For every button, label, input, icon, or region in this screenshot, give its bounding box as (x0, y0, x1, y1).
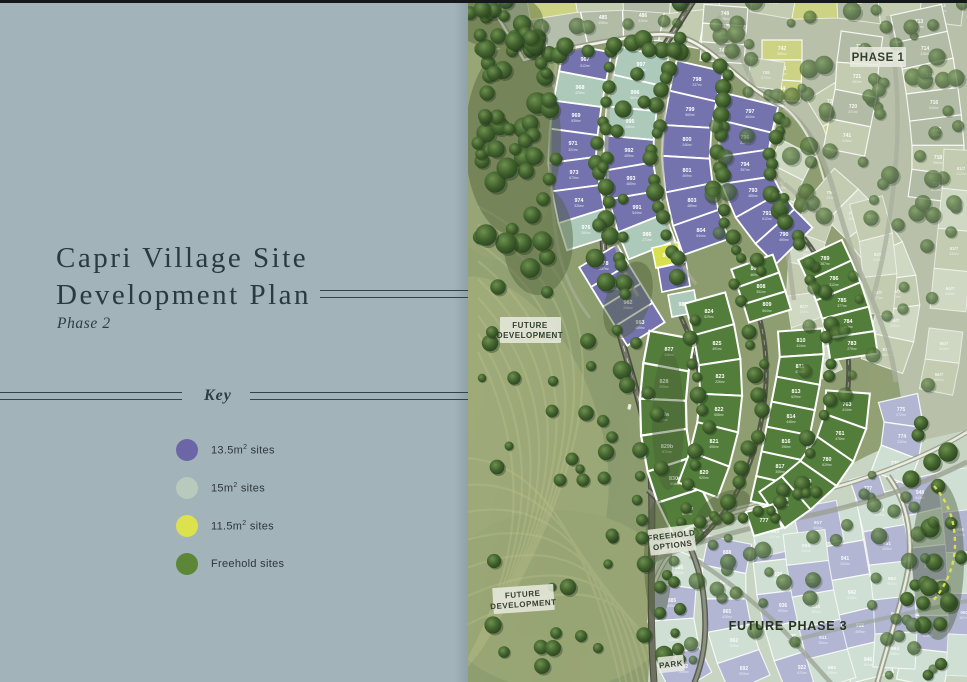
svg-text:265m²: 265m² (882, 547, 892, 551)
svg-text:629m²: 629m² (822, 463, 832, 467)
svg-text:745: 745 (762, 70, 770, 75)
svg-text:377m²: 377m² (837, 304, 847, 308)
svg-text:971: 971 (569, 141, 578, 147)
svg-text:490m²: 490m² (779, 238, 789, 242)
svg-text:658m²: 658m² (714, 413, 724, 417)
svg-text:393m²: 393m² (739, 672, 749, 676)
svg-text:670m²: 670m² (569, 176, 579, 180)
svg-text:61/7: 61/7 (957, 166, 966, 171)
svg-text:459m²: 459m² (624, 154, 634, 158)
svg-text:529m²: 529m² (704, 315, 714, 319)
svg-text:316m²: 316m² (842, 139, 852, 143)
svg-text:351m²: 351m² (863, 663, 873, 667)
svg-text:485m²: 485m² (626, 182, 636, 186)
svg-text:312m²: 312m² (956, 172, 966, 176)
svg-text:670m²: 670m² (761, 76, 771, 80)
svg-text:335m²: 335m² (827, 671, 837, 675)
svg-text:287m²: 287m² (820, 262, 830, 266)
svg-text:279m²: 279m² (847, 347, 857, 351)
svg-text:272m²: 272m² (896, 413, 906, 417)
svg-text:65/7: 65/7 (940, 341, 949, 346)
svg-text:498m²: 498m² (598, 21, 608, 25)
svg-text:503m²: 503m² (887, 582, 897, 586)
svg-text:FUTURE: FUTURE (512, 321, 548, 330)
svg-text:242m²: 242m² (840, 562, 850, 566)
svg-text:425m²: 425m² (575, 91, 585, 95)
svg-text:325m²: 325m² (729, 644, 739, 648)
svg-text:612m²: 612m² (762, 217, 772, 221)
svg-text:544m²: 544m² (696, 234, 706, 238)
svg-text:FUTURE PHASE 3: FUTURE PHASE 3 (729, 619, 848, 633)
svg-text:234m²: 234m² (674, 571, 684, 575)
svg-text:420m²: 420m² (799, 310, 809, 314)
svg-text:486m²: 486m² (748, 194, 758, 198)
svg-text:326m²: 326m² (574, 204, 584, 208)
svg-text:598m²: 598m² (890, 652, 900, 656)
svg-text:491m²: 491m² (712, 347, 722, 351)
svg-text:254m²: 254m² (818, 641, 828, 645)
svg-text:476m²: 476m² (835, 437, 845, 441)
svg-text:409m²: 409m² (855, 630, 865, 634)
svg-text:321m²: 321m² (568, 148, 578, 152)
svg-text:645m²: 645m² (929, 106, 939, 110)
svg-text:493m²: 493m² (852, 80, 862, 84)
svg-text:237m²: 237m² (770, 535, 780, 539)
svg-text:PHASE 1: PHASE 1 (852, 52, 905, 64)
svg-text:448m²: 448m² (786, 420, 796, 424)
svg-text:593m²: 593m² (778, 609, 788, 613)
svg-text:590m²: 590m² (933, 161, 943, 165)
svg-text:312m²: 312m² (829, 283, 839, 287)
svg-text:629m²: 629m² (791, 395, 801, 399)
svg-text:289m²: 289m² (811, 610, 821, 614)
svg-text:777: 777 (760, 518, 769, 524)
svg-text:544m²: 544m² (632, 211, 642, 215)
svg-text:496m²: 496m² (709, 445, 719, 449)
svg-text:645m²: 645m² (945, 292, 955, 296)
svg-text:564m²: 564m² (762, 309, 772, 313)
svg-text:351m²: 351m² (756, 290, 766, 294)
svg-text:539m²: 539m² (571, 119, 581, 123)
svg-text:459m²: 459m² (682, 174, 692, 178)
svg-text:460m²: 460m² (745, 115, 755, 119)
svg-text:809: 809 (763, 302, 772, 308)
svg-text:414m²: 414m² (842, 408, 852, 412)
svg-text:371m²: 371m² (848, 110, 858, 114)
svg-text:242m²: 242m² (897, 440, 907, 444)
svg-text:362m²: 362m² (959, 616, 967, 620)
svg-text:219m²: 219m² (801, 549, 811, 553)
svg-text:539m²: 539m² (669, 638, 679, 642)
svg-text:66/7: 66/7 (935, 372, 944, 377)
svg-text:786: 786 (830, 276, 839, 282)
svg-text:280m²: 280m² (581, 231, 591, 235)
svg-text:246m²: 246m² (625, 125, 635, 129)
svg-text:246m²: 246m² (682, 143, 692, 147)
svg-text:63/7: 63/7 (950, 246, 959, 251)
svg-text:550m²: 550m² (934, 378, 944, 382)
svg-text:950: 950 (960, 610, 967, 615)
svg-text:518m²: 518m² (847, 596, 857, 600)
svg-text:226m²: 226m² (715, 380, 725, 384)
svg-text:449m²: 449m² (890, 324, 900, 328)
svg-text:485m²: 485m² (687, 204, 697, 208)
svg-text:310m²: 310m² (638, 19, 648, 23)
svg-text:671m²: 671m² (797, 671, 807, 675)
svg-text:64/7: 64/7 (946, 286, 955, 291)
svg-text:643m²: 643m² (939, 347, 949, 351)
svg-text:512m²: 512m² (580, 64, 590, 68)
svg-text:560m²: 560m² (685, 113, 695, 117)
svg-text:196m²: 196m² (781, 445, 791, 449)
svg-text:586m²: 586m² (777, 52, 787, 56)
svg-text:237m²: 237m² (692, 83, 702, 87)
svg-text:82/7: 82/7 (800, 304, 809, 309)
svg-text:530m²: 530m² (949, 252, 959, 256)
svg-text:DEVELOPMENT: DEVELOPMENT (497, 331, 563, 340)
svg-text:520m²: 520m² (699, 476, 709, 480)
svg-text:357m²: 357m² (740, 168, 750, 172)
svg-text:271m²: 271m² (642, 238, 652, 242)
svg-text:414m²: 414m² (796, 344, 806, 348)
